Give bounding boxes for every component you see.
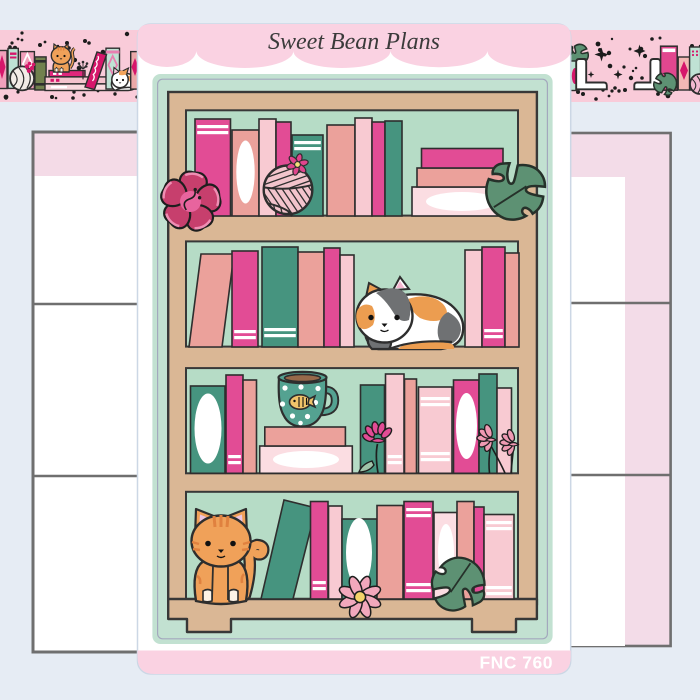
svg-text:FNC 760: FNC 760 [479,653,553,673]
svg-text:Sweet Bean Plans: Sweet Bean Plans [268,29,440,55]
